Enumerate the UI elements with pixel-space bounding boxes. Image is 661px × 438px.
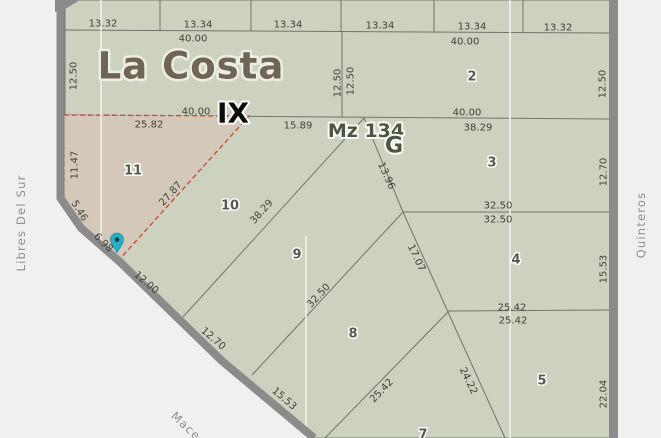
parcel-number: 4 <box>511 253 520 268</box>
dimension-label: 12.50 <box>598 70 609 99</box>
street-name: Quinteros <box>634 192 648 259</box>
dimension-label: 12.50 <box>333 69 344 98</box>
dimension-label: 12.70 <box>599 158 610 187</box>
parcel-number: 9 <box>292 248 301 263</box>
dimension-label: 13.32 <box>544 23 573 34</box>
dimension-label: 22.04 <box>599 380 610 409</box>
dimension-label: 13.34 <box>274 20 303 31</box>
dimension-label: 25.42 <box>499 316 528 327</box>
street-name: Libres Del Sur <box>14 175 28 272</box>
dimension-label: 12.50 <box>69 62 80 91</box>
dimension-label: 13.32 <box>89 19 118 30</box>
section-label: IX <box>217 97 249 130</box>
block-letter-label: G <box>385 134 403 159</box>
parcel-number: 8 <box>348 327 357 342</box>
parcel-number: 5 <box>537 374 546 389</box>
dimension-label: 15.89 <box>284 121 313 132</box>
dimension-label: 11.47 <box>70 151 81 180</box>
dimension-label: 15.53 <box>599 255 610 284</box>
dimension-label: 32.50 <box>484 215 513 226</box>
dimension-label: 32.50 <box>484 201 513 212</box>
locality-label: La Costa <box>98 45 285 88</box>
cadastral-map-canvas[interactable]: 13.3213.3413.3413.3413.3413.3240.0040.00… <box>0 0 661 438</box>
dimension-label: 13.34 <box>366 21 395 32</box>
dimension-label: 25.82 <box>135 120 164 131</box>
dimension-label: 13.34 <box>184 20 213 31</box>
parcel-number: 7 <box>418 428 427 438</box>
dimension-label: 38.29 <box>464 123 493 134</box>
dimension-label: 25.42 <box>498 303 527 314</box>
parcel-number: 2 <box>467 70 476 85</box>
cadastral-map-viewport[interactable]: 13.3213.3413.3413.3413.3413.3240.0040.00… <box>0 0 661 438</box>
dimension-label: 40.00 <box>451 37 480 48</box>
parcel-number: 10 <box>221 199 239 214</box>
dimension-label: 12.50 <box>346 67 357 96</box>
dimension-label: 40.00 <box>182 107 211 118</box>
parcel-number: 11 <box>124 164 142 179</box>
parcel-number: 3 <box>487 156 496 171</box>
dimension-label: 40.00 <box>453 108 482 119</box>
dimension-label: 40.00 <box>179 34 208 45</box>
dimension-label: 13.34 <box>458 22 487 33</box>
marker-dot <box>115 237 120 242</box>
